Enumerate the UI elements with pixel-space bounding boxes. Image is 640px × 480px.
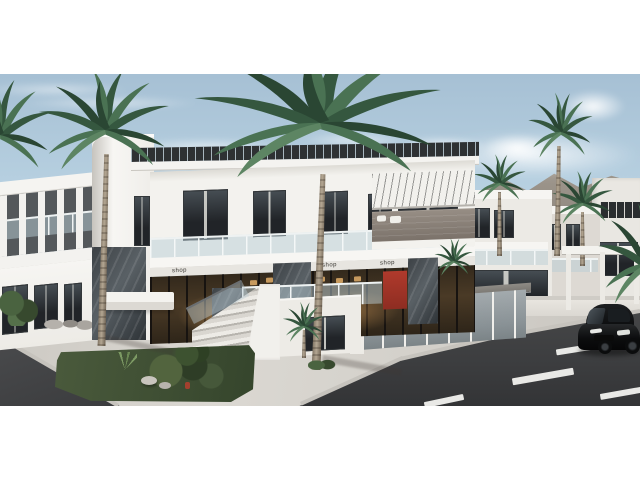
garden-rocks — [44, 316, 92, 330]
shop-sign: shop — [380, 260, 395, 268]
island-rock — [141, 376, 157, 385]
balcony-chair — [390, 216, 401, 223]
shop-sign: shop — [322, 262, 337, 270]
wing-columns — [0, 186, 96, 257]
car-wheel — [625, 338, 640, 354]
upper-window — [183, 189, 228, 241]
palm-crown — [0, 98, 60, 172]
car-wheel — [598, 340, 612, 354]
upper-window — [253, 190, 286, 237]
small-palm-crown — [280, 310, 328, 342]
cafe-furniture — [266, 277, 273, 282]
left-garden-shrubs — [0, 288, 38, 326]
green-island — [55, 344, 255, 402]
cafe-furniture — [250, 280, 257, 285]
upper-window — [322, 191, 348, 235]
car-windshield — [586, 308, 605, 324]
car-side-window — [608, 309, 630, 322]
island-rock — [159, 382, 171, 389]
palm-crown — [470, 164, 530, 202]
palm-base-tuft — [308, 358, 336, 370]
red-display-panel — [383, 271, 407, 310]
tower-slit-window — [134, 196, 150, 246]
black-car — [578, 302, 640, 356]
palm-crown — [178, 74, 462, 178]
agave-plant — [113, 352, 137, 370]
shop-sign: shop — [172, 268, 187, 276]
render-viewport: shop shop shop — [0, 74, 640, 406]
stone-parapet — [372, 208, 475, 242]
cafe-furniture — [354, 276, 361, 281]
villa-window — [494, 210, 514, 238]
stone-bench — [104, 292, 174, 310]
balcony-chair — [377, 215, 386, 221]
pergola-gate-post — [566, 254, 571, 310]
right-edge-palm — [592, 224, 640, 304]
red-plant — [185, 382, 190, 389]
palm-crown — [524, 106, 598, 158]
small-palm-crown — [432, 246, 476, 276]
letterboxed-render-page: shop shop shop — [0, 0, 640, 480]
